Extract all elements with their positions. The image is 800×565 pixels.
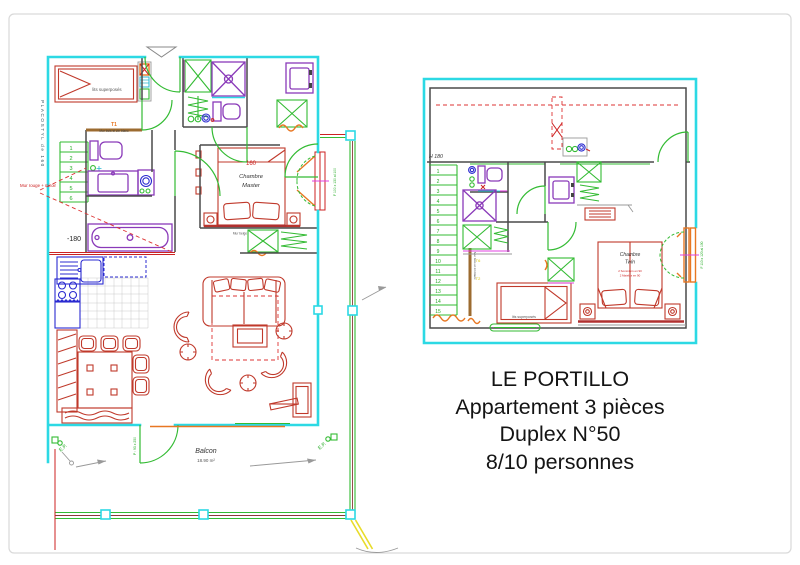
stair-number: 6 — [437, 219, 440, 225]
plan-caption: LE PORTILLO Appartement 3 pièces Duplex … — [418, 366, 702, 476]
hall-closet-2 — [277, 100, 307, 131]
caption-residence-name: LE PORTILLO — [418, 366, 702, 394]
stair-number: 4 — [69, 176, 72, 182]
mirror-note-leaders — [40, 168, 172, 252]
stair-number: 13 — [435, 289, 441, 295]
label-chambre: Chambre — [239, 174, 264, 180]
twin-window — [660, 228, 699, 282]
stair-number: 11 — [435, 269, 440, 275]
label-lits-superposes: lits superposés — [92, 87, 122, 92]
stair-number: 4 — [437, 199, 440, 205]
stair-number: 14 — [435, 299, 441, 305]
kitchen — [55, 257, 146, 328]
luggage-rack — [585, 208, 615, 220]
radiator — [468, 319, 480, 324]
drain-icon — [331, 434, 337, 440]
label-chambre-twin-2: Twin — [625, 260, 635, 266]
railing-post — [199, 510, 208, 519]
blueprint-page: 1 2 3 4 5 6 — [0, 0, 800, 565]
drain-icon — [52, 437, 58, 443]
stair-number: 7 — [437, 229, 440, 235]
stairs-upper: 1 2 3 4 5 6 7 8 9 10 11 12 13 14 15 — [429, 165, 457, 315]
railing-post — [101, 510, 110, 519]
label-t6: T6 — [476, 258, 481, 263]
label-lits-superposes-upper: lits superposés — [512, 315, 536, 319]
rug — [212, 296, 278, 360]
caption-apartment-type: Appartement 3 pièces — [418, 394, 702, 422]
stair-number: 5 — [69, 186, 72, 192]
label-master: Master — [242, 183, 261, 189]
label-balcon-area: 18.90 m² — [197, 458, 215, 463]
label-t2: T2 — [476, 276, 481, 281]
toilet — [213, 102, 240, 121]
floor-plans-drawing: 1 2 3 4 5 6 — [0, 0, 800, 565]
label-placostyl: PLACOSTYL de 160 — [40, 100, 45, 168]
entry-wardrobe — [138, 62, 151, 101]
stair-number: 3 — [437, 189, 440, 195]
stair-number: 15 — [435, 309, 441, 315]
label-bath-level: -180 — [67, 236, 81, 243]
stair-number: 1 — [437, 169, 440, 175]
bunk-bed — [55, 66, 137, 102]
radiator — [433, 315, 465, 321]
label-mur-beige: Mur beige — [233, 232, 247, 236]
label-h180: H 180 — [429, 154, 443, 160]
bathtub — [88, 224, 172, 251]
stair-number: 1 — [69, 146, 72, 152]
vanity-sink-top — [286, 63, 313, 93]
outer-walls-upper — [424, 79, 696, 343]
section-cut-line — [351, 520, 373, 549]
label-porte-balcon: P : 93 x 250 — [133, 437, 137, 455]
stair-number: 2 — [437, 179, 440, 185]
kitchen-counter-line — [48, 253, 175, 255]
label-chambre-twin-1: Chambre — [620, 252, 641, 258]
bedroom-closet — [248, 230, 307, 256]
doors-upper — [517, 186, 576, 250]
armchair — [174, 312, 189, 342]
coffee-table — [233, 325, 267, 347]
vanity-upper — [549, 177, 574, 203]
label-fenetre-lower: F 100 x 130 al 100 — [333, 168, 337, 196]
caption-capacity: 8/10 personnes — [418, 449, 702, 477]
stair-number: 10 — [435, 259, 441, 265]
label-bed-width: 160 — [246, 161, 257, 167]
water-heater — [563, 138, 590, 156]
label-balcon: Balcon — [195, 448, 217, 455]
stair-number: 3 — [69, 166, 72, 172]
closet-upper-3 — [545, 258, 574, 283]
doors-lower — [140, 57, 318, 463]
bench — [490, 324, 540, 331]
shower-upper — [463, 190, 496, 221]
label-mur-rouge: Mur rouge + miroir — [20, 183, 57, 188]
label-t1: T1 — [111, 122, 117, 128]
label-fenetre-upper: F 110 x 120 al 100 — [700, 241, 704, 268]
floor-plan-lower: 1 2 3 4 5 6 — [20, 47, 398, 553]
tv — [270, 398, 299, 410]
label-mur-bois: Mur bois et zin blanc — [99, 129, 129, 133]
railing-post — [314, 306, 322, 314]
inner-walls-upper — [430, 88, 686, 328]
door-upper-right — [658, 132, 688, 162]
sofa-set — [174, 277, 311, 417]
hall-closet — [184, 60, 211, 120]
caption-duplex-number: Duplex N°50 — [418, 421, 702, 449]
stair-number: 6 — [69, 196, 72, 202]
label-twin-note-2: 2 Matelas en 90 — [620, 274, 641, 278]
railing-post — [346, 510, 355, 519]
entrance-arrow-icon — [147, 47, 176, 57]
railing-post — [346, 131, 355, 140]
floor-plan-upper: H 180 1 2 3 4 5 6 7 8 9 10 11 12 13 14 1… — [424, 79, 704, 343]
kitchen-tiles — [80, 278, 148, 328]
stair-number: 8 — [437, 239, 440, 245]
label-ep-right: E.P. — [317, 441, 328, 451]
armchair — [261, 352, 293, 384]
stair-number: 12 — [435, 279, 441, 285]
label-twin-note-1: 2 Sommiers en 90 — [618, 269, 642, 273]
stair-number: 5 — [437, 209, 440, 215]
closet-upper-2 — [577, 162, 633, 212]
stairs-lower: 1 2 3 4 5 6 — [60, 142, 88, 202]
shower — [212, 62, 245, 98]
stair-number: 9 — [437, 249, 440, 255]
wc-room — [88, 141, 154, 195]
master-window — [297, 152, 329, 210]
railing-post — [348, 306, 357, 315]
armchair — [199, 369, 231, 401]
stair-number: 2 — [69, 156, 72, 162]
dining-set — [57, 330, 149, 423]
